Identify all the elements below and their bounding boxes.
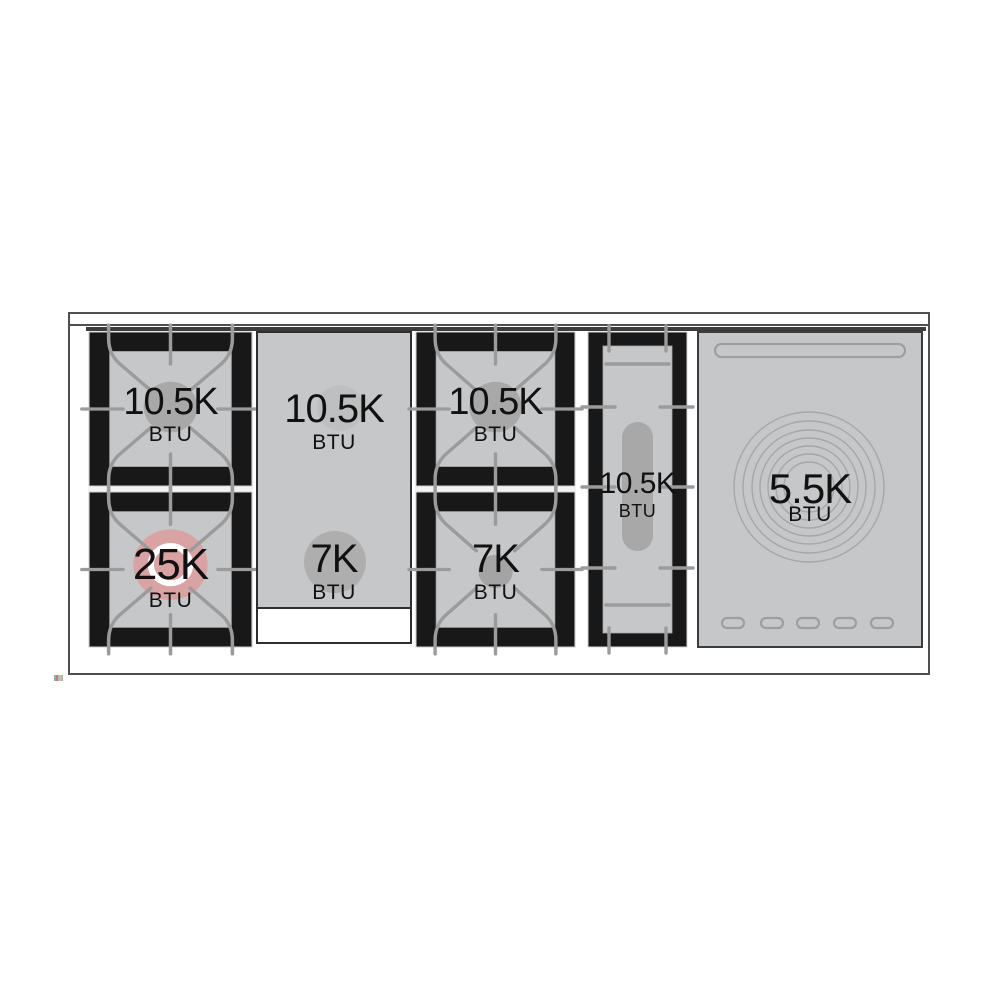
griddle-burner-spot-bottom (304, 531, 366, 593)
burner-grate-icon (415, 491, 576, 648)
griddle-section: 10.5K BTU 7K BTU (256, 331, 412, 644)
btu-unit: BTU (258, 432, 410, 453)
left-burner-unit: 10.5K BTU 25K BTU (88, 331, 253, 648)
rangetop-burner-diagram: 10.5K BTU 25K BTU (0, 0, 1000, 1000)
burner-grate-icon (415, 331, 576, 487)
french-top-section: 5.5K BTU (697, 331, 923, 648)
oval-burner-unit: 10.5K BTU (587, 331, 688, 648)
stray-pixel-artifact (54, 675, 63, 681)
griddle-burner-spot-top (317, 385, 363, 431)
burner-grate-icon (88, 491, 253, 648)
oval-burner-grate-icon (587, 331, 688, 648)
griddle-grease-tray (258, 607, 410, 642)
burner-bottom-center: 7K BTU (415, 491, 576, 648)
burner-top-center: 10.5K BTU (415, 331, 576, 487)
center-burner-unit: 10.5K BTU 7K BTU (415, 331, 576, 648)
burner-grate-icon (88, 331, 253, 487)
french-top-plate-icon (699, 333, 921, 646)
burner-bottom-left-power: 25K BTU (88, 491, 253, 648)
burner-top-left: 10.5K BTU (88, 331, 253, 487)
